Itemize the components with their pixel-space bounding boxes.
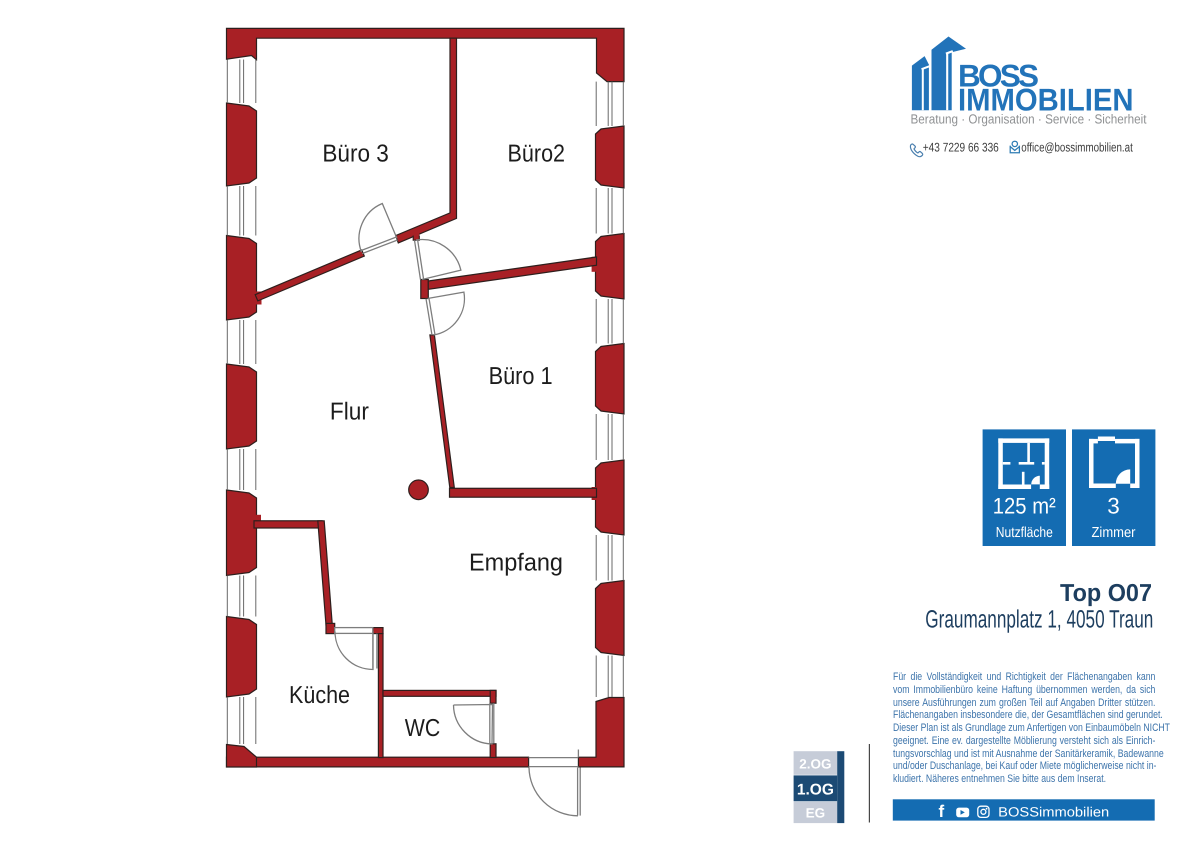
svg-text:Zimmer: Zimmer <box>1092 525 1136 541</box>
svg-text:125 m²: 125 m² <box>993 494 1056 519</box>
svg-text:WC: WC <box>405 715 441 742</box>
svg-text:office@bossimmobilien.at: office@bossimmobilien.at <box>1021 140 1133 154</box>
svg-text:+43 7229 66 336: +43 7229 66 336 <box>923 140 999 154</box>
svg-text:1.OG: 1.OG <box>797 782 834 799</box>
svg-text:BOSSimmobilien: BOSSimmobilien <box>998 805 1109 820</box>
svg-text:Nutzfläche: Nutzfläche <box>996 525 1053 541</box>
svg-text:Büro 3: Büro 3 <box>322 140 389 167</box>
svg-text:2.OG: 2.OG <box>799 757 831 772</box>
svg-text:Graumannplatz 1, 4050 Traun: Graumannplatz 1, 4050 Traun <box>925 606 1153 634</box>
svg-text:Flur: Flur <box>330 399 369 426</box>
svg-text:f: f <box>939 802 945 821</box>
svg-text:Beratung · Organisation · Serv: Beratung · Organisation · Service · Sich… <box>911 111 1147 126</box>
svg-text:Empfang: Empfang <box>469 550 563 577</box>
svg-text:3: 3 <box>1107 494 1120 519</box>
svg-text:EG: EG <box>806 806 826 821</box>
svg-text:Top O07: Top O07 <box>1060 580 1152 607</box>
svg-text:Büro2: Büro2 <box>508 140 566 167</box>
svg-text:Büro 1: Büro 1 <box>489 363 553 390</box>
svg-text:Küche: Küche <box>289 682 350 709</box>
